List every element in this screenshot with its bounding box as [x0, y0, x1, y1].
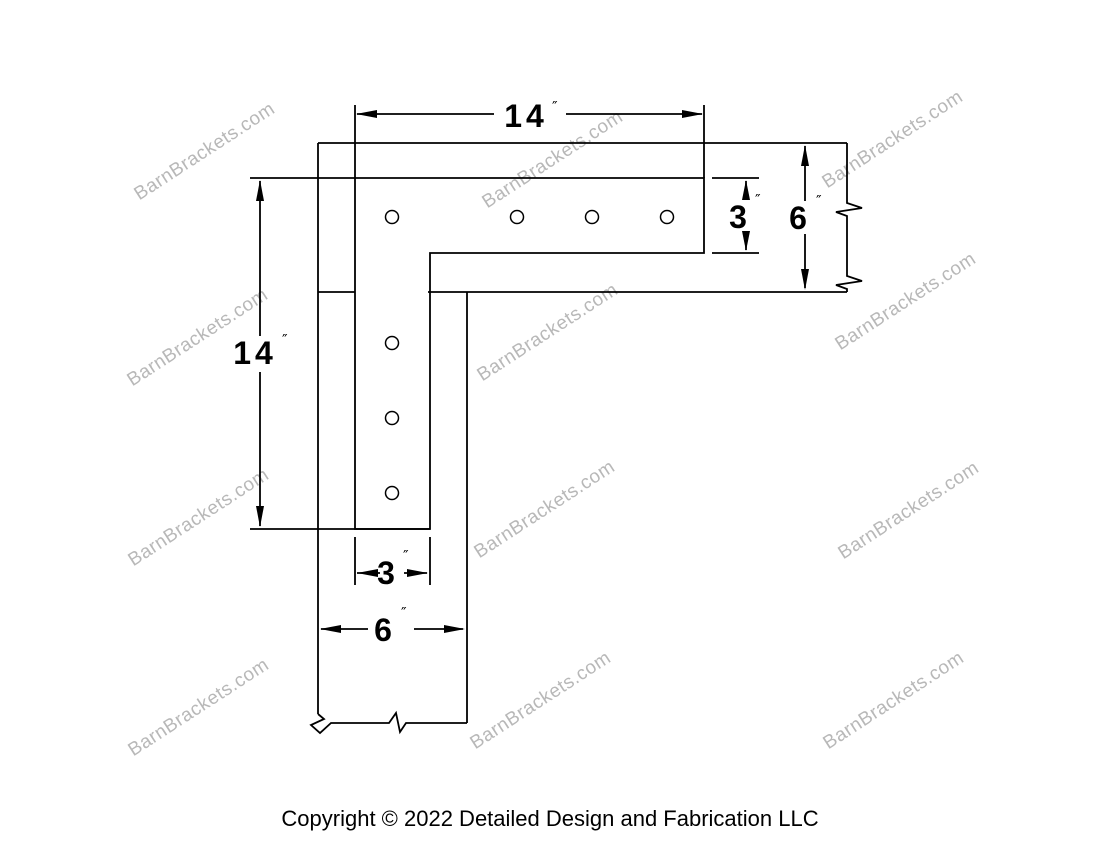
arrowhead-down — [256, 506, 264, 527]
arrowhead-right — [407, 569, 428, 577]
dim-plate-width: 3 ″ — [355, 537, 430, 591]
arrowhead-left — [320, 625, 341, 633]
bracket-plate — [355, 178, 704, 529]
dim-plate-width-unit: ″ — [403, 547, 410, 565]
dim-top-length-unit: ″ — [552, 98, 559, 116]
bolt-hole — [661, 211, 674, 224]
arrowhead-right — [682, 110, 703, 118]
dim-left-length-label: 14 — [233, 335, 277, 371]
dim-top-length: 14 ″ — [355, 98, 704, 178]
arrowhead-down — [801, 269, 809, 290]
dim-plate-height-unit: ″ — [755, 191, 762, 209]
arrowhead-up — [801, 145, 809, 166]
bolt-hole — [386, 487, 399, 500]
copyright-text: Copyright © 2022 Detailed Design and Fab… — [0, 806, 1100, 832]
bolt-hole — [386, 412, 399, 425]
arrowhead-right — [444, 625, 465, 633]
beam-bottom-edge-with-breaks — [311, 713, 467, 733]
dim-beam-height-unit: ″ — [816, 192, 823, 210]
dim-beam-width: 6 ″ — [320, 604, 465, 648]
arrowhead-left — [356, 110, 377, 118]
bolt-hole — [386, 337, 399, 350]
dim-left-length-lines — [250, 178, 430, 529]
beam-right-edge-with-breaks — [836, 143, 862, 292]
bolt-hole — [386, 211, 399, 224]
bolt-hole — [511, 211, 524, 224]
arrowhead-left — [357, 569, 378, 577]
dim-beam-width-unit: ″ — [401, 604, 408, 622]
dim-beam-height-label: 6 — [789, 200, 811, 236]
dim-plate-height: 3 ″ — [712, 178, 762, 253]
dim-left-length-unit: ″ — [282, 331, 289, 349]
dim-plate-height-label: 3 — [729, 199, 751, 235]
dim-left-length: 14 ″ — [233, 178, 430, 529]
arrowhead-up — [256, 180, 264, 201]
bracket-outline — [355, 178, 704, 529]
arrowhead-up — [742, 180, 750, 200]
bolt-hole — [586, 211, 599, 224]
dim-plate-width-label: 3 — [377, 555, 399, 591]
dim-beam-height: 6 ″ — [789, 145, 823, 290]
technical-drawing-page: BarnBrackets.comBarnBrackets.comBarnBrac… — [0, 0, 1100, 850]
dim-top-length-label: 14 — [504, 98, 548, 134]
dim-beam-width-label: 6 — [374, 612, 396, 648]
bracket-diagram: 14 ″ 3 ″ 6 ″ — [0, 0, 1100, 850]
